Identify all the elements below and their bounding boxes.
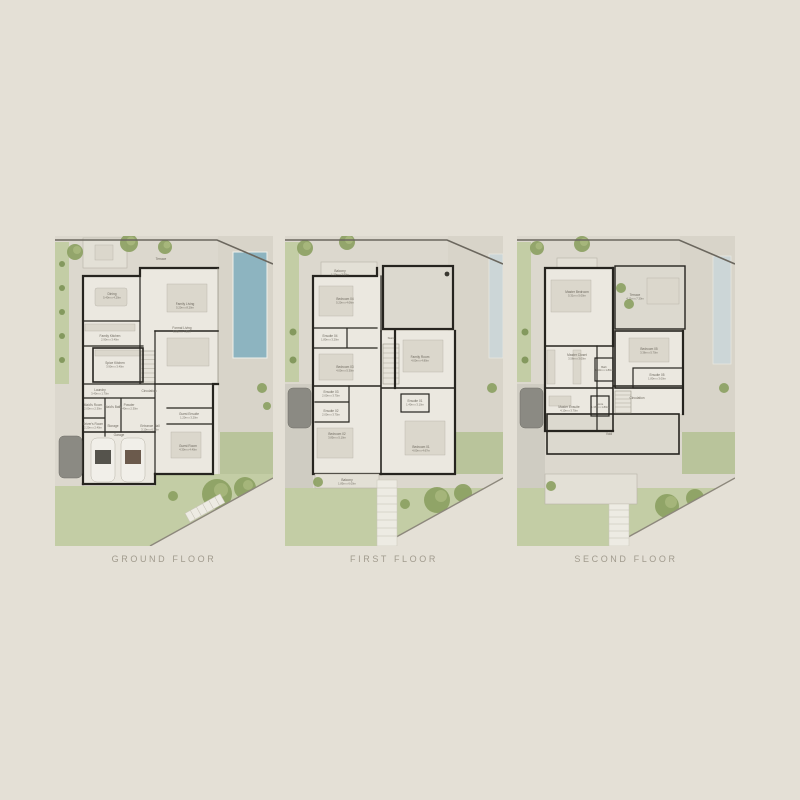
svg-text:4.00m x 4.67m: 4.00m x 4.67m: [412, 449, 431, 453]
first-floor-svg: Balcony1.20m x 3.50m Bedroom 045.20m x 4…: [285, 236, 503, 546]
label-maids-bath: Maid's Bath: [105, 405, 122, 409]
label-bedroom-05: Bedroom 053.36m x 5.70m: [640, 347, 659, 355]
label-void: Void: [606, 432, 612, 436]
svg-text:1.40m x 1.80m: 1.40m x 1.80m: [595, 368, 614, 372]
svg-text:Ensuite 01: Ensuite 01: [407, 399, 422, 403]
svg-text:Ensuite 04: Ensuite 04: [322, 334, 337, 338]
stairs: [383, 344, 399, 384]
label-master-closet: Master Closet3.56m x 3.00m: [567, 353, 587, 361]
label-spice-kitchen: Spice Kitchen3.90m x 3.40m: [105, 361, 125, 369]
car-driveway: [520, 388, 543, 428]
svg-text:3.56m x 3.00m: 3.56m x 3.00m: [568, 357, 587, 361]
label-guest-room: Guest Room4.30m x 4.40m: [179, 444, 198, 452]
label-circulation: Circulation: [629, 396, 644, 400]
double-height-void-roof: [383, 266, 453, 329]
label-family-room: Family Room4.00m x 4.80m: [411, 355, 430, 363]
label-master-ensuite: Master Ensuite4.10m x 3.70m: [558, 405, 579, 413]
svg-text:1.20m x 3.20m: 1.20m x 3.20m: [180, 416, 199, 420]
svg-text:2.00m x 2.30m: 2.00m x 2.30m: [84, 407, 103, 411]
svg-text:Family Room: Family Room: [411, 355, 430, 359]
svg-text:Terrace: Terrace: [156, 257, 167, 261]
svg-text:3.90m x 3.40m: 3.90m x 3.40m: [106, 365, 125, 369]
label-family-kitchen: Family Kitchen2.90m x 3.40m: [100, 334, 121, 342]
svg-text:3.40m x 1.70m: 3.40m x 1.70m: [91, 392, 110, 396]
svg-text:Entrance Hall: Entrance Hall: [140, 424, 159, 428]
caption-first-floor: FIRST FLOOR: [285, 554, 503, 564]
caption-second-floor: SECOND FLOOR: [517, 554, 735, 564]
svg-text:Master Closet: Master Closet: [567, 353, 587, 357]
svg-text:Master Ensuite: Master Ensuite: [558, 405, 579, 409]
svg-text:Laundry: Laundry: [94, 388, 106, 392]
svg-text:4.00m x 5.30m: 4.00m x 5.30m: [336, 369, 355, 373]
label-maids-room: Maid's Room2.00m x 2.30m: [84, 403, 103, 411]
svg-text:4.11m x 7.30m: 4.11m x 7.30m: [626, 297, 644, 301]
svg-text:3.10m x 6.35m: 3.10m x 6.35m: [141, 428, 160, 432]
svg-text:Ensuite 02: Ensuite 02: [323, 409, 338, 413]
svg-text:1.20m x 3.50m: 1.20m x 3.50m: [331, 272, 350, 276]
cars: [59, 436, 145, 482]
floor-plans-sheet: Terrace Dining5.40m x 4.20m Family Livin…: [0, 0, 800, 800]
label-bedroom-03: Bedroom 034.00m x 5.30m: [336, 365, 355, 373]
stairs: [615, 391, 631, 413]
svg-text:Balcony: Balcony: [334, 269, 346, 273]
svg-text:4.00m x 4.80m: 4.00m x 4.80m: [411, 359, 430, 363]
label-circulation: Circulation: [141, 389, 156, 393]
car-driveway: [288, 388, 311, 428]
svg-text:Family Kitchen: Family Kitchen: [100, 334, 121, 338]
svg-text:Powder: Powder: [124, 403, 136, 407]
second-floor-svg: Master Bedroom5.31m x 5.00m Terrace4.11m…: [517, 236, 735, 546]
label-stairs: Stairs: [388, 336, 396, 340]
entry-walkway: [377, 480, 397, 546]
label-ensuite-05: Ensuite 051.80m x 3.00m: [648, 373, 667, 381]
label-bedroom-01: Bedroom 014.00m x 4.67m: [412, 445, 431, 453]
svg-text:Spice Kitchen: Spice Kitchen: [105, 361, 125, 365]
svg-text:2.00m x 3.75m: 2.00m x 3.75m: [322, 413, 341, 417]
caption-ground-floor: GROUND FLOOR: [55, 554, 273, 564]
swimming-pool-below: [489, 254, 503, 358]
svg-text:Bedroom 02: Bedroom 02: [328, 432, 346, 436]
ground-floor-plan: Terrace Dining5.40m x 4.20m Family Livin…: [55, 236, 273, 546]
svg-text:Ensuite 05: Ensuite 05: [649, 373, 664, 377]
second-floor-plan: Master Bedroom5.31m x 5.00m Terrace4.11m…: [517, 236, 735, 546]
label-storage: Storage: [107, 424, 118, 428]
svg-text:1.40m x 3.10m: 1.40m x 3.10m: [406, 403, 425, 407]
svg-text:Terrace: Terrace: [630, 293, 641, 297]
svg-text:5.20m x 4.06m: 5.20m x 4.06m: [336, 301, 355, 305]
outdoor-table: [95, 245, 113, 260]
svg-text:Maid's Bath: Maid's Bath: [105, 405, 122, 409]
lower-roof-terrace: [545, 474, 637, 504]
label-garage: Garage: [114, 433, 125, 437]
label-master-bedroom: Master Bedroom5.31m x 5.00m: [565, 290, 589, 298]
svg-text:Storage: Storage: [107, 424, 118, 428]
label-entrance-hall: Entrance Hall3.10m x 6.35m: [140, 424, 159, 432]
label-bedroom-02: Bedroom 023.85m x 5.10m: [328, 432, 347, 440]
label-drivers-room: Driver's Room2.20m x 2.40m: [83, 422, 103, 430]
svg-text:2.20m x 2.40m: 2.20m x 2.40m: [84, 426, 103, 430]
svg-text:3.36m x 5.70m: 3.36m x 5.70m: [640, 351, 659, 355]
svg-text:5.20m x 8.20m: 5.20m x 8.20m: [176, 306, 195, 310]
svg-text:5.40m x 4.20m: 5.40m x 4.20m: [103, 296, 122, 300]
svg-text:4.10m x 3.70m: 4.10m x 3.70m: [560, 409, 579, 413]
svg-text:Bedroom 05: Bedroom 05: [640, 347, 658, 351]
label-terrace: Terrace: [156, 257, 167, 261]
label-family-living: Family Living5.20m x 8.20m: [176, 302, 195, 310]
svg-text:Formal Living: Formal Living: [172, 326, 191, 330]
label-ensuite-02: Ensuite 022.00m x 3.75m: [322, 409, 341, 417]
svg-text:Maid's Room: Maid's Room: [84, 403, 103, 407]
svg-text:2.90m x 3.40m: 2.90m x 3.40m: [101, 338, 120, 342]
svg-text:Balcony: Balcony: [341, 478, 353, 482]
svg-text:Guest Ensuite: Guest Ensuite: [179, 412, 199, 416]
svg-text:Bedroom 03: Bedroom 03: [336, 365, 354, 369]
svg-text:1.80m x 3.00m: 1.80m x 3.00m: [648, 377, 667, 381]
label-ensuite-03: Ensuite 032.00m x 3.75m: [322, 390, 341, 398]
svg-text:Driver's Room: Driver's Room: [83, 422, 103, 426]
first-floor-plan: Balcony1.20m x 3.50m Bedroom 045.20m x 4…: [285, 236, 503, 546]
svg-text:Family Living: Family Living: [176, 302, 195, 306]
svg-text:Garage: Garage: [114, 433, 125, 437]
svg-text:Ensuite 03: Ensuite 03: [323, 390, 338, 394]
svg-text:Circulation: Circulation: [141, 389, 156, 393]
ground-floor-svg: Terrace Dining5.40m x 4.20m Family Livin…: [55, 236, 273, 546]
svg-text:2.00m x 3.75m: 2.00m x 3.75m: [322, 394, 341, 398]
svg-text:1.80m x 3.20m: 1.80m x 3.20m: [321, 338, 340, 342]
svg-text:Bedroom 01: Bedroom 01: [412, 445, 430, 449]
svg-text:Master Bedroom: Master Bedroom: [565, 290, 589, 294]
svg-text:5.31m x 5.00m: 5.31m x 5.00m: [568, 294, 587, 298]
entry-walkway: [609, 504, 629, 546]
roof-detail: [445, 272, 450, 277]
label-bedroom-04: Bedroom 045.20m x 4.06m: [336, 297, 355, 305]
label-ensuite-04: Ensuite 041.80m x 3.20m: [321, 334, 340, 342]
svg-text:Guest Room: Guest Room: [179, 444, 197, 448]
svg-text:1.40m x 2.30m: 1.40m x 2.30m: [120, 407, 139, 411]
swimming-pool: [233, 252, 267, 358]
svg-text:4.30m x 4.40m: 4.30m x 4.40m: [179, 448, 198, 452]
label-ensuite-01: Ensuite 011.40m x 3.10m: [406, 399, 425, 407]
swimming-pool-below: [713, 256, 731, 364]
svg-text:3.85m x 5.10m: 3.85m x 5.10m: [328, 436, 347, 440]
car-driveway: [59, 436, 82, 478]
label-guest-ensuite: Guest Ensuite1.20m x 3.20m: [179, 412, 199, 420]
svg-text:5.80m x 4.80m: 5.80m x 4.80m: [173, 330, 192, 334]
label-formal-living: Formal Living5.80m x 4.80m: [172, 326, 191, 334]
svg-text:1.85m x 6.00m: 1.85m x 6.00m: [338, 481, 357, 485]
svg-text:Void: Void: [606, 432, 612, 436]
balcony-top: [321, 262, 377, 276]
svg-text:Bedroom 04: Bedroom 04: [336, 297, 354, 301]
svg-text:Stairs: Stairs: [388, 336, 396, 340]
balcony-top: [557, 258, 597, 268]
svg-text:1.36m x 1.80m: 1.36m x 1.80m: [591, 405, 610, 409]
svg-text:Circulation: Circulation: [629, 396, 644, 400]
svg-text:Dining: Dining: [107, 292, 116, 296]
